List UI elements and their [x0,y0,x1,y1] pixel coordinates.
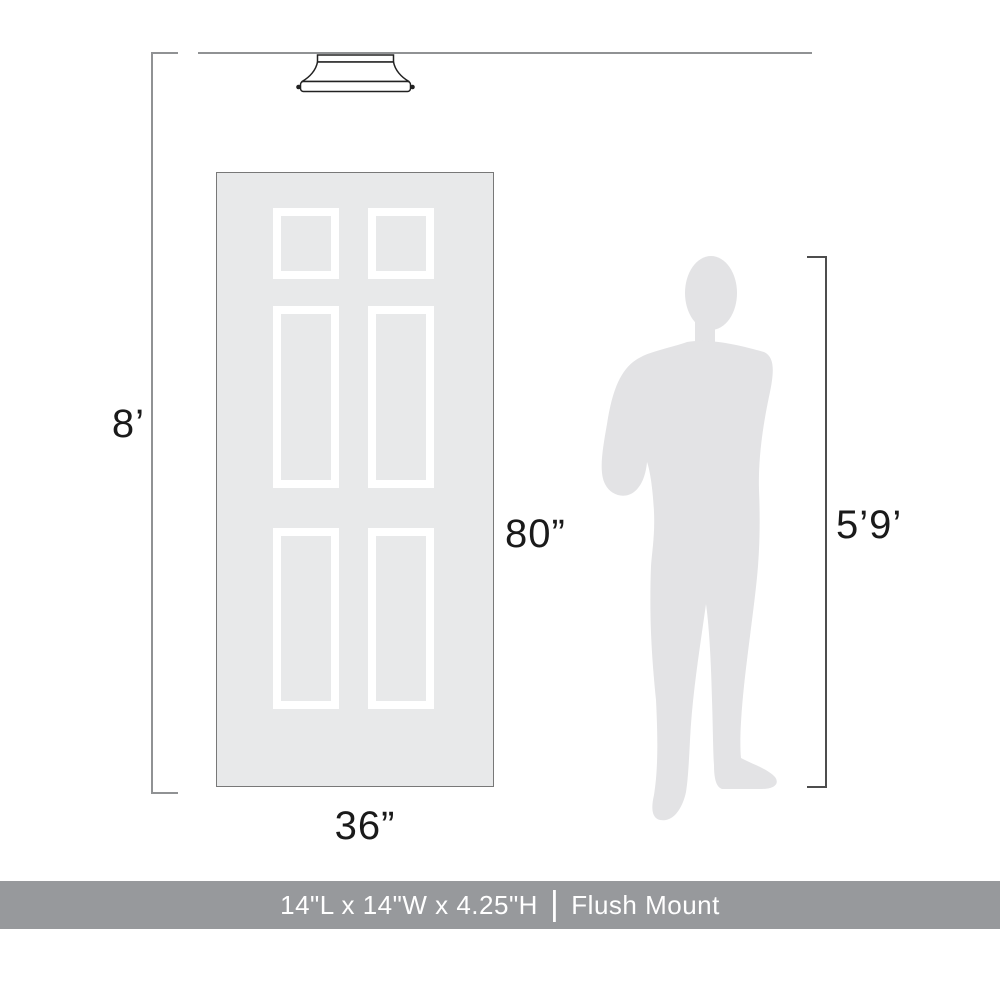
door-panel [368,208,434,279]
fixture-canopy [318,55,394,62]
person-height-label: 5’9’ [836,503,902,548]
ceiling-height-label: 8’ [85,402,145,447]
fixture-rim [301,82,411,92]
door-panel [273,528,339,709]
fixture-knob-left [296,85,301,90]
person-height-bracket [807,257,826,787]
door-width-label: 36” [305,804,425,849]
door-height-label: 80” [505,512,566,557]
product-dimensions-text: 14"L x 14"W x 4.25"H [280,890,538,921]
fixture-dome [302,62,409,82]
person-body [602,341,777,820]
door-panel [273,208,339,279]
scale-diagram: 8’ 80” 36” 5’9’ 14"L x 14"W x 4.25"H | F… [0,0,1000,1000]
fixture-knob-right [410,85,415,90]
door-panel [368,306,434,488]
door-panel [368,528,434,709]
ceiling-height-bracket [152,53,178,793]
footer-divider: | [550,887,559,921]
flush-mount-light-icon [296,55,415,92]
person-silhouette-icon [602,256,777,820]
door-panel [273,306,339,488]
mount-type-text: Flush Mount [571,890,720,921]
product-dimensions-bar: 14"L x 14"W x 4.25"H | Flush Mount [0,881,1000,929]
door-illustration [216,172,494,787]
diagram-linework [0,0,1000,1000]
